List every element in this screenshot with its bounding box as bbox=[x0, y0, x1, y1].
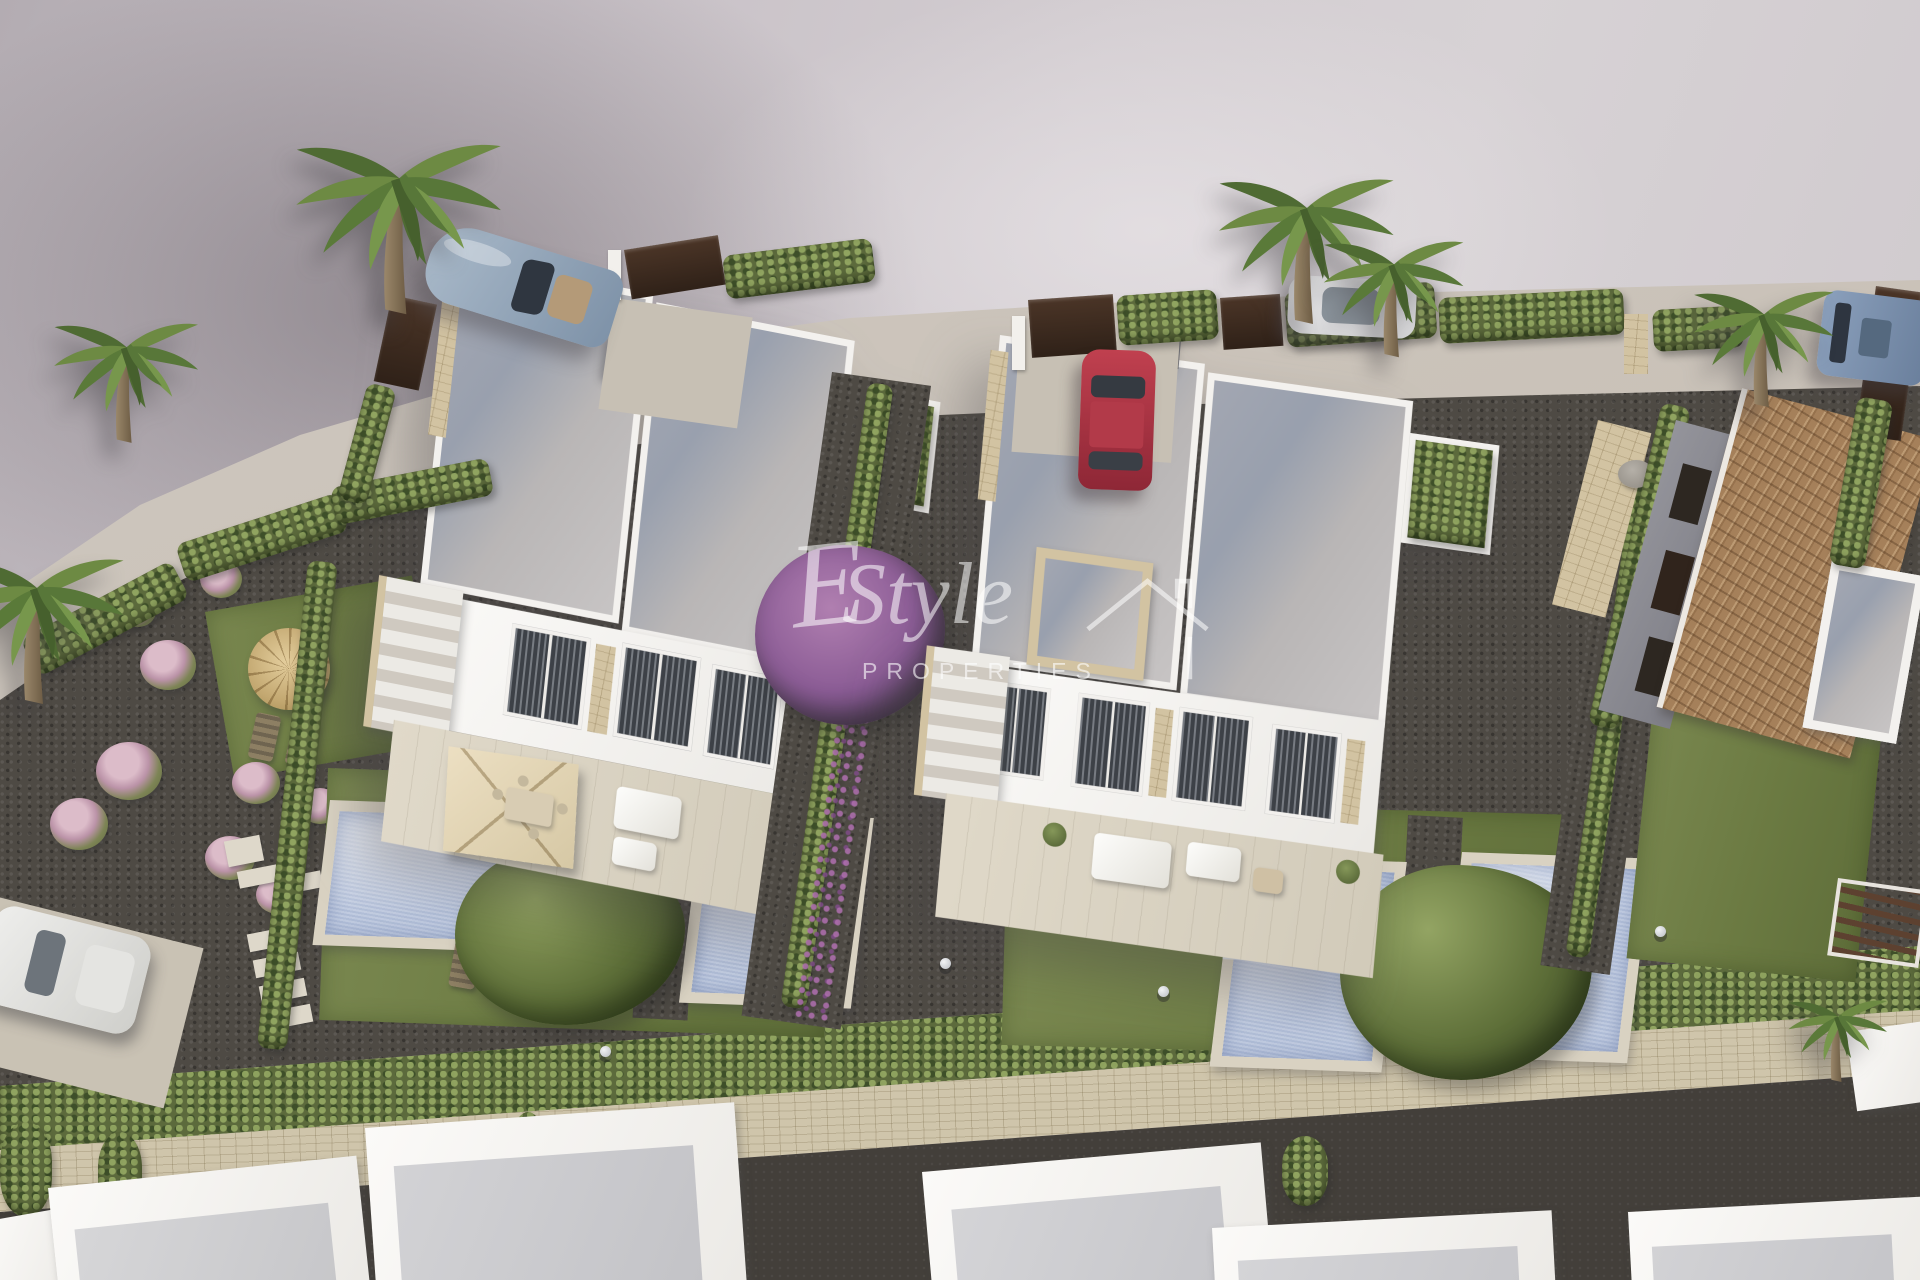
potted-plant bbox=[1042, 821, 1068, 848]
sandstone-strip bbox=[1148, 708, 1173, 798]
garage-roof bbox=[1037, 558, 1143, 669]
roof-garden-hedge bbox=[1407, 440, 1493, 548]
building-roof-slab bbox=[1652, 1234, 1897, 1280]
villa1-driveway bbox=[598, 298, 752, 428]
gate-post bbox=[1012, 316, 1025, 370]
outdoor-sofa bbox=[611, 836, 657, 872]
suv-glass bbox=[23, 928, 68, 997]
palm-tree bbox=[1772, 950, 1902, 1091]
villa2-roof-right bbox=[1180, 372, 1413, 727]
sandstone-strip bbox=[587, 644, 616, 735]
building-roof-slab bbox=[1238, 1246, 1522, 1280]
roof-garden-terrace bbox=[1401, 433, 1500, 555]
facade-window bbox=[1172, 707, 1253, 811]
suv-hood bbox=[73, 943, 137, 1015]
facade-window bbox=[503, 623, 591, 730]
facade-window bbox=[613, 643, 701, 752]
building-roof-slab bbox=[394, 1145, 707, 1280]
car-rear-window bbox=[1088, 451, 1143, 471]
building-roof-slab bbox=[951, 1186, 1233, 1280]
villa2-entry-stairs bbox=[914, 645, 1010, 806]
flowering-bush bbox=[232, 762, 280, 804]
facade-window bbox=[1265, 724, 1342, 823]
potted-plant bbox=[1335, 858, 1361, 885]
garden-lamp bbox=[940, 958, 951, 969]
palm-tree bbox=[1300, 170, 1485, 370]
building-roof-slab bbox=[74, 1203, 340, 1280]
car-interior bbox=[545, 273, 594, 326]
garden-lamp bbox=[1655, 926, 1666, 937]
stone-pillar bbox=[1624, 314, 1648, 374]
red-hatchback bbox=[1078, 349, 1157, 491]
villa1-entry-stairs bbox=[363, 575, 463, 743]
roadside-shrub bbox=[0, 1122, 52, 1217]
aerial-render-scene: E Style PROPERTIES bbox=[0, 0, 1920, 1280]
facade-window bbox=[1071, 693, 1150, 797]
unfinished-building bbox=[1628, 1196, 1920, 1280]
car-windshield bbox=[1091, 375, 1146, 399]
outdoor-sofa bbox=[1091, 832, 1172, 889]
brown-gate-panel bbox=[1028, 294, 1117, 358]
flowering-bush bbox=[96, 742, 162, 800]
flowering-bush bbox=[50, 798, 108, 850]
palm-tree bbox=[262, 40, 532, 333]
suv-sunroof bbox=[1858, 317, 1892, 358]
car-roof bbox=[1089, 401, 1145, 449]
sandstone-strip bbox=[1340, 739, 1365, 825]
palm-tree bbox=[0, 470, 150, 720]
outdoor-sofa bbox=[613, 786, 682, 840]
outdoor-sofa bbox=[1185, 841, 1241, 882]
roadside-shrub bbox=[1282, 1136, 1328, 1206]
garden-lamp bbox=[1158, 986, 1169, 997]
pouf bbox=[1252, 867, 1284, 895]
garden-lamp bbox=[600, 1046, 611, 1057]
unfinished-building bbox=[365, 1102, 749, 1280]
house-window bbox=[1669, 463, 1712, 525]
palm-tree bbox=[1670, 220, 1855, 420]
palm-tree bbox=[30, 250, 220, 456]
villa2-garage-annex bbox=[1026, 547, 1153, 681]
